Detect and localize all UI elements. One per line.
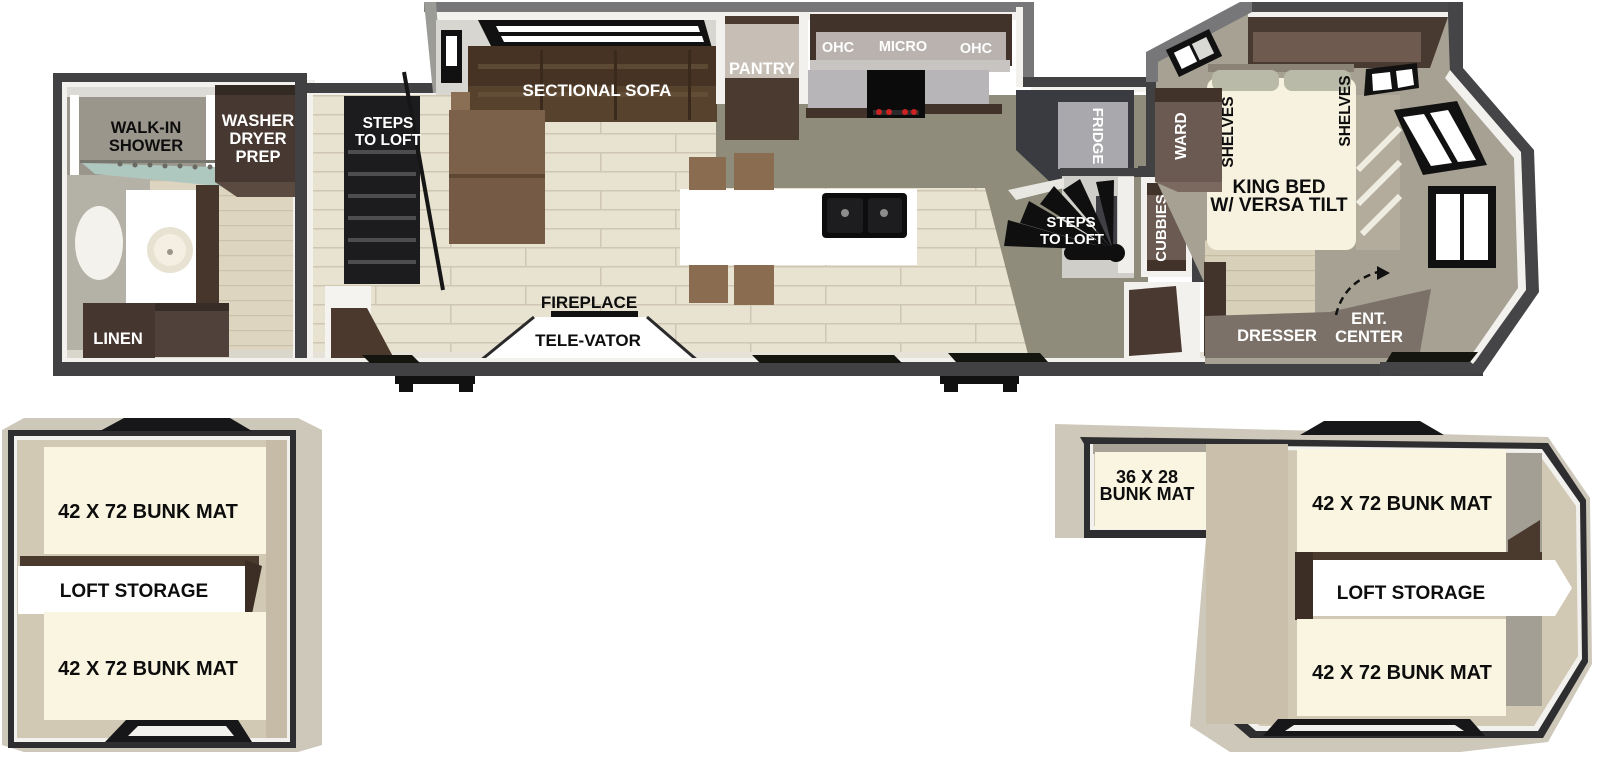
svg-text:OHC: OHC <box>960 41 993 57</box>
svg-text:42 X 72 BUNK MAT: 42 X 72 BUNK MAT <box>58 501 238 523</box>
svg-text:DRYER: DRYER <box>229 130 286 148</box>
svg-text:WARD: WARD <box>1173 112 1190 159</box>
svg-text:ENT.: ENT. <box>1351 310 1387 328</box>
svg-text:PANTRY: PANTRY <box>729 60 795 78</box>
svg-text:BUNK MAT: BUNK MAT <box>1100 484 1195 504</box>
svg-text:FRIDGE: FRIDGE <box>1089 108 1106 165</box>
svg-text:FIREPLACE: FIREPLACE <box>541 293 637 312</box>
svg-text:W/ VERSA TILT: W/ VERSA TILT <box>1210 195 1348 216</box>
svg-text:42 X 72 BUNK MAT: 42 X 72 BUNK MAT <box>1312 662 1492 684</box>
svg-text:42 X 72 BUNK MAT: 42 X 72 BUNK MAT <box>58 658 238 680</box>
svg-text:SHOWER: SHOWER <box>109 137 183 155</box>
svg-text:TELE-VATOR: TELE-VATOR <box>535 331 641 350</box>
svg-text:OHC: OHC <box>822 40 855 56</box>
svg-text:SECTIONAL SOFA: SECTIONAL SOFA <box>523 81 672 100</box>
svg-text:PREP: PREP <box>236 148 281 166</box>
svg-text:SHELVES: SHELVES <box>1337 75 1354 146</box>
svg-text:STEPS: STEPS <box>363 115 414 132</box>
svg-text:SHELVES: SHELVES <box>1220 96 1237 167</box>
svg-text:LOFT STORAGE: LOFT STORAGE <box>60 581 208 602</box>
svg-text:TO LOFT: TO LOFT <box>355 132 422 149</box>
svg-text:WASHER: WASHER <box>222 112 295 130</box>
svg-text:CENTER: CENTER <box>1335 328 1403 346</box>
svg-text:TO LOFT: TO LOFT <box>1040 231 1104 248</box>
svg-text:42 X 72 BUNK MAT: 42 X 72 BUNK MAT <box>1312 493 1492 515</box>
svg-text:LINEN: LINEN <box>93 330 143 348</box>
svg-text:MICRO: MICRO <box>879 39 927 55</box>
svg-text:CUBBIES: CUBBIES <box>1153 194 1170 262</box>
svg-text:WALK-IN: WALK-IN <box>111 119 182 137</box>
svg-text:LOFT STORAGE: LOFT STORAGE <box>1337 583 1485 604</box>
svg-text:STEPS: STEPS <box>1046 214 1095 231</box>
svg-text:DRESSER: DRESSER <box>1237 327 1317 345</box>
